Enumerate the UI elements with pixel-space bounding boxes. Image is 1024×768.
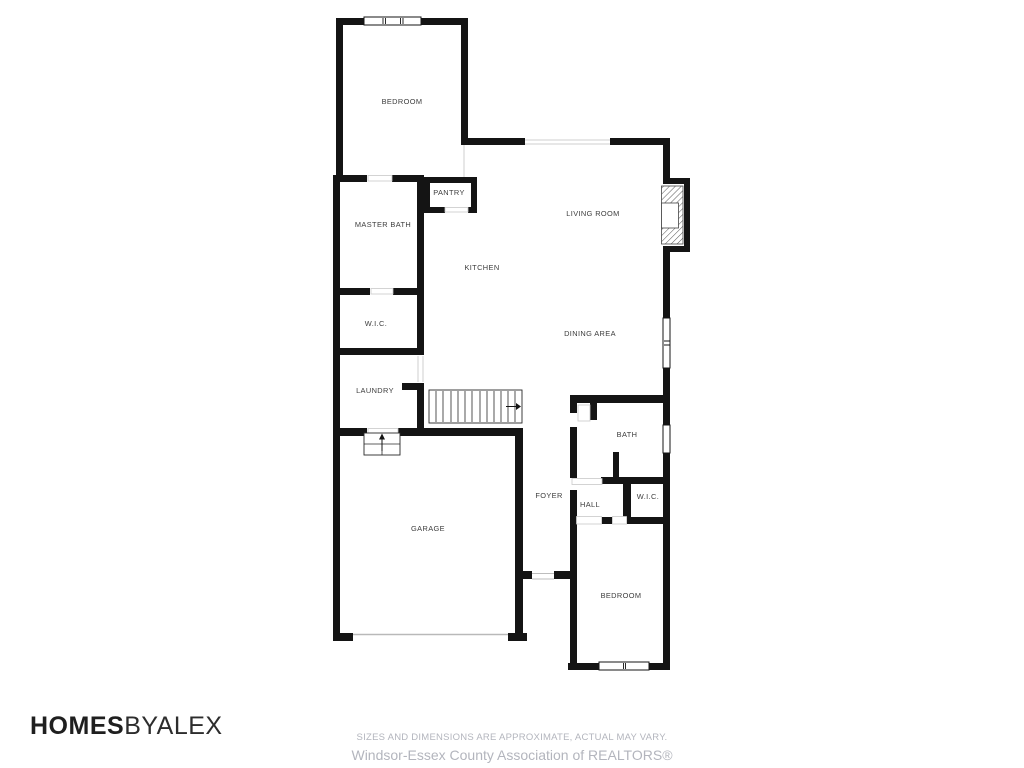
room-label-laundry: LAUNDRY (356, 386, 394, 395)
door-wic-bottom (613, 517, 627, 525)
room-label-garage: GARAGE (411, 524, 445, 533)
room-label-dining-area: DINING AREA (564, 329, 616, 338)
window-icon-bedroom-top (364, 17, 421, 25)
door-bedroom-bottom (577, 517, 602, 525)
window-icon-bath (663, 425, 670, 453)
window-icon-dining (663, 318, 670, 368)
front-door-lines (532, 574, 554, 580)
stairs-icon (429, 390, 522, 423)
room-label-hall: HALL (580, 500, 600, 509)
room-label-bedroom-bottom: BEDROOM (601, 591, 642, 600)
walls (333, 18, 670, 670)
room-label-wic-bottom: W.I.C. (637, 492, 659, 501)
room-label-bath: BATH (617, 430, 638, 439)
room-label-foyer: FOYER (535, 491, 562, 500)
disclaimer-text: SIZES AND DIMENSIONS ARE APPROXIMATE, AC… (0, 732, 1024, 744)
door-hall (572, 479, 602, 485)
door-bath (578, 405, 590, 421)
room-label-bedroom-top: BEDROOM (382, 97, 423, 106)
room-label-kitchen: KITCHEN (464, 263, 499, 272)
window-icon-bedroom-bottom (599, 662, 649, 670)
room-label-living-room: LIVING ROOM (566, 209, 619, 218)
door-pantry (445, 208, 468, 213)
room-label-wic-top: W.I.C. (365, 319, 387, 328)
attribution-text: Windsor-Essex County Association of REAL… (0, 747, 1024, 764)
room-label-master-bath: MASTER BATH (355, 220, 411, 229)
opening-lines (418, 140, 610, 382)
floorplan-drawing: BEDROOM PANTRY MASTER BATH LIVING ROOM K… (0, 0, 1024, 768)
floorplan-page: BEDROOM PANTRY MASTER BATH LIVING ROOM K… (0, 0, 1024, 768)
door-wic-top (371, 289, 393, 295)
room-label-pantry: PANTRY (433, 188, 465, 197)
garage-steps-icon (364, 433, 400, 455)
door-master-bath (368, 176, 392, 182)
fireplace-icon (662, 178, 691, 252)
footer-disclaimer-block: SIZES AND DIMENSIONS ARE APPROXIMATE, AC… (0, 732, 1024, 764)
